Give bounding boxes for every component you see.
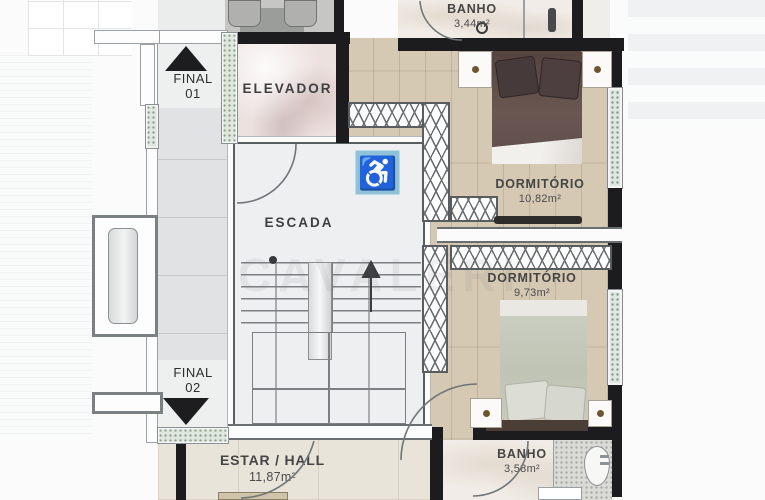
final02-line1: FINAL xyxy=(158,366,228,381)
bed1-pillow-left xyxy=(495,55,540,98)
wardrobe-bedroom1-left xyxy=(422,102,450,222)
wall-stairs-bottom xyxy=(228,424,432,440)
bed1-pillow-right xyxy=(538,57,582,100)
shower-column-icon xyxy=(548,8,556,32)
final01-up-arrow-icon xyxy=(165,46,207,71)
elevator-label: ELEVADOR xyxy=(239,81,336,98)
nightstand-knob xyxy=(472,66,479,73)
window-bedroom-2 xyxy=(608,290,622,385)
bed2-pillow-right xyxy=(544,384,587,423)
bath-bottom-area: 3,58m² xyxy=(462,463,582,477)
top-furniture-seat-left xyxy=(228,0,261,27)
bath-top-right-floor xyxy=(583,0,610,38)
final01-line1: FINAL xyxy=(158,72,228,87)
wall-bath-top-right-stub xyxy=(572,0,583,40)
final01-line2: 01 xyxy=(158,87,228,102)
nightstand-bed1-right xyxy=(582,51,612,88)
nightstand-bed1-left xyxy=(458,51,492,88)
wall-bath-top-bottom xyxy=(398,38,624,51)
wall-top-stub xyxy=(334,0,344,36)
threshold-left-wall xyxy=(146,105,158,148)
bedroom1-label: DORMITÓRIO 10,82m² xyxy=(470,177,610,206)
wall-bedroom-divider xyxy=(437,227,622,243)
planter-window xyxy=(108,228,138,324)
exterior-grid-top-left xyxy=(28,0,132,56)
final02-line2: 02 xyxy=(158,381,228,396)
exterior-texture-top-right xyxy=(628,0,765,126)
bed2-sheet-fold xyxy=(500,300,587,316)
floor-plan: ELEVADOR ♿ ESCADA xyxy=(0,0,765,500)
threshold-final02 xyxy=(158,428,228,443)
bath-top-name: BANHO xyxy=(412,2,532,18)
watermark: CAVALERI xyxy=(238,248,522,302)
stairs-label: ESCADA xyxy=(253,215,345,232)
stair-landing-divider-v xyxy=(328,332,330,424)
living-hall-name: ESTAR / HALL xyxy=(185,452,360,470)
tv-console-bedroom1 xyxy=(494,216,582,224)
bath-top-label: BANHO 3,44m² xyxy=(412,2,532,31)
nightstand-knob xyxy=(594,66,601,73)
bedroom1-area: 10,82m² xyxy=(470,193,610,207)
nightstand-knob xyxy=(483,410,490,417)
exterior-texture-left xyxy=(0,55,92,435)
bath-top-area: 3,44m² xyxy=(412,18,532,32)
toilet-tank-icon-2 xyxy=(600,462,609,465)
living-hall-area: 11,87m² xyxy=(185,470,360,486)
final01-label: FINAL 01 xyxy=(158,72,228,102)
wall-corridor-top xyxy=(150,30,228,44)
final02-down-arrow-icon xyxy=(163,398,209,425)
accessibility-icon: ♿ xyxy=(355,150,400,195)
bedroom1-name: DORMITÓRIO xyxy=(470,177,610,193)
nightstand-bed2-right xyxy=(588,400,612,427)
wall-t-stem xyxy=(140,44,155,106)
wall-bottom-left-stub xyxy=(92,392,163,414)
wall-t-bar xyxy=(94,30,160,44)
top-lobby-floor xyxy=(158,0,225,30)
bath-bottom-label: BANHO 3,58m² xyxy=(462,447,582,476)
final02-label: FINAL 02 xyxy=(158,366,228,396)
bath-bottom-counter xyxy=(538,487,582,500)
toilet-tank-icon xyxy=(600,455,609,458)
living-bench xyxy=(218,492,288,500)
nightstand-bed2-left xyxy=(470,398,502,428)
living-hall-label: ESTAR / HALL 11,87m² xyxy=(185,452,360,485)
bath-bottom-name: BANHO xyxy=(462,447,582,463)
window-bedroom-1 xyxy=(608,88,622,188)
wardrobe-bedroom1-top xyxy=(348,102,425,128)
nightstand-knob xyxy=(597,410,604,417)
top-furniture-seat-right xyxy=(284,0,317,27)
